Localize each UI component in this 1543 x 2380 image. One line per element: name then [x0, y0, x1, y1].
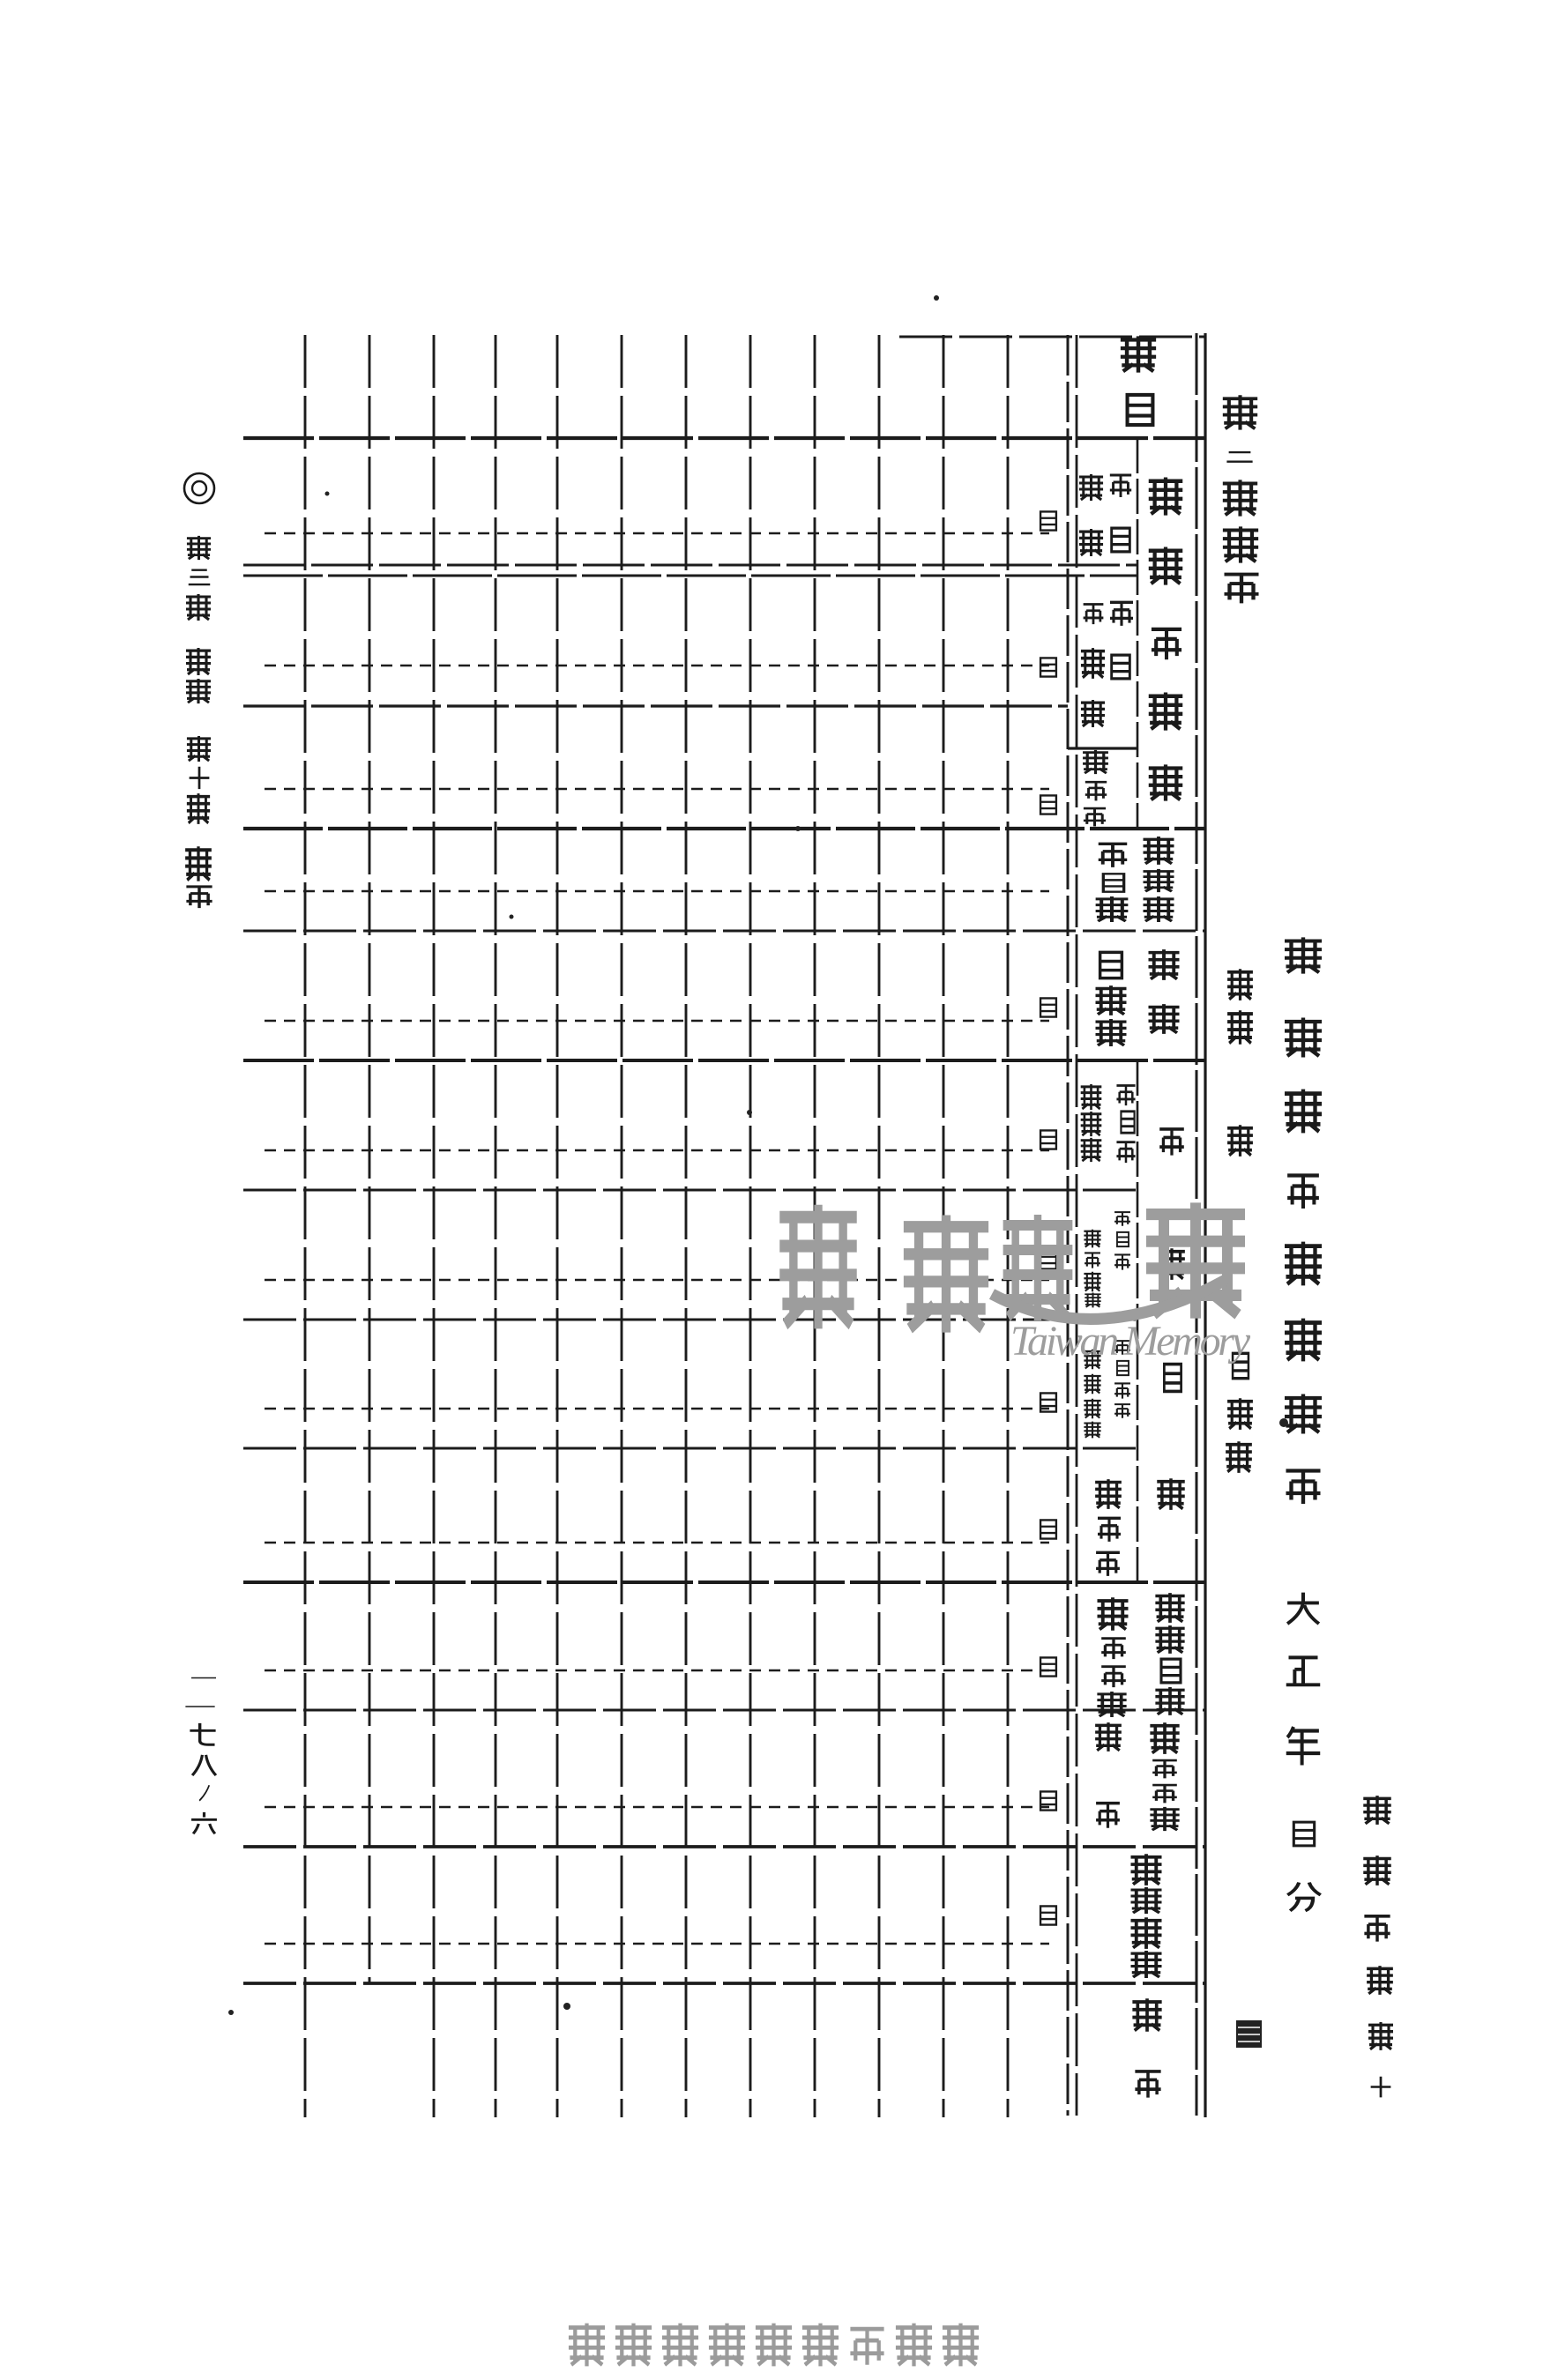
svg-text:Taiwan Memory: Taiwan Memory: [1010, 1318, 1251, 1365]
